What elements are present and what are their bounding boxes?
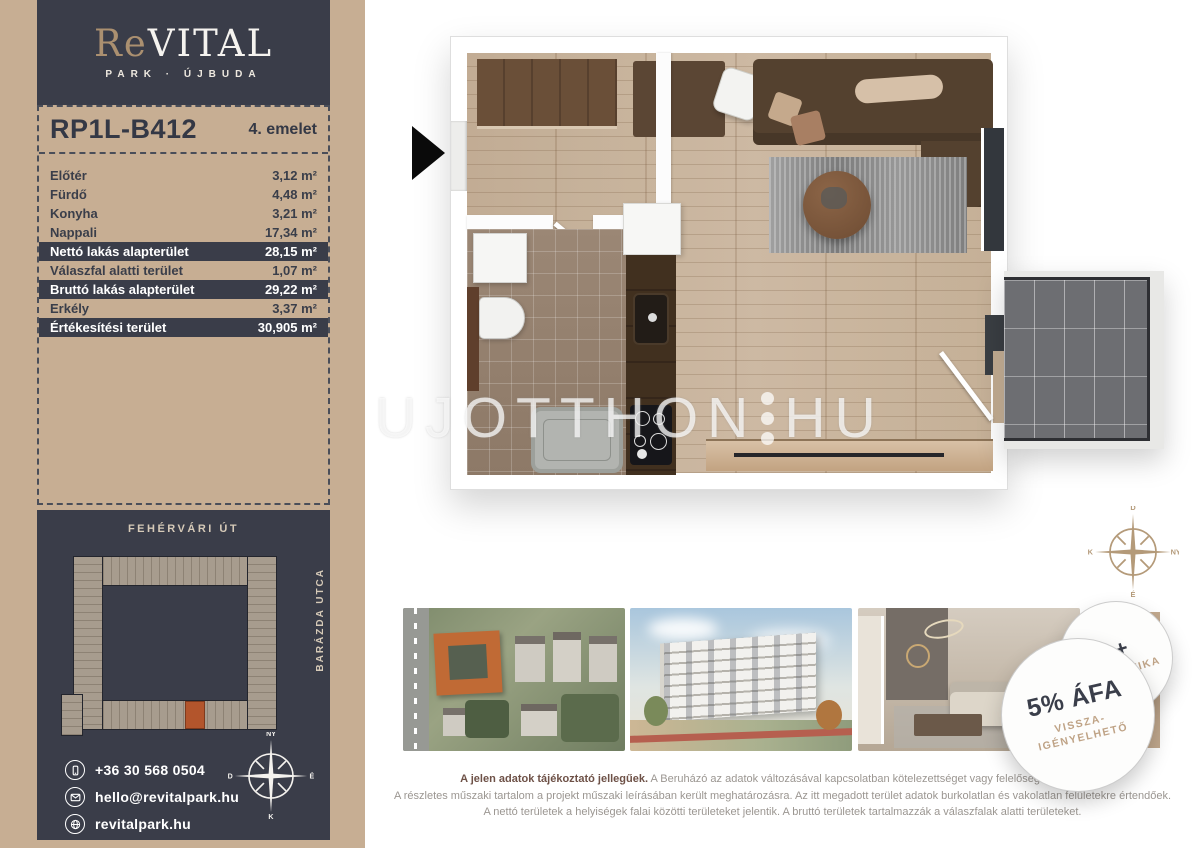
row-value: 30,905 m² xyxy=(258,320,317,335)
table-row-highlight: Értékesítési terület30,905 m² xyxy=(39,318,328,337)
building-block xyxy=(515,636,545,682)
disclaimer-lead: A jelen adatok tájékoztató jellegűek. xyxy=(460,773,648,785)
unit-floor: 4. emelet xyxy=(249,121,317,139)
brand-subtitle: PARK · ÚJBUDA xyxy=(105,69,261,80)
disclaimer-line-2: A részletes műszaki tartalom a projekt m… xyxy=(390,788,1175,805)
window xyxy=(981,128,1007,251)
watermark-text-left: UJOTTHON xyxy=(375,390,757,447)
brand-logo: ReVITAL PARK · ÚJBUDA xyxy=(37,0,330,105)
compass-rose-sidebar: NY É K D xyxy=(227,732,315,820)
building-block xyxy=(521,704,557,736)
entrance-arrow-icon xyxy=(412,126,445,180)
unit-location-marker xyxy=(185,701,205,729)
building-block xyxy=(553,632,581,682)
watermark: UJOTTHON HU xyxy=(375,386,885,450)
contact-block: +36 30 568 0504 hello@revitalpark.hu xyxy=(65,760,239,841)
table-row: Erkély3,37 m² xyxy=(39,299,328,318)
row-value: 4,48 m² xyxy=(272,187,317,202)
table-row: Előtér3,12 m² xyxy=(39,166,328,185)
row-value: 29,22 m² xyxy=(265,282,317,297)
table-row: Válaszfal alatti terület1,07 m² xyxy=(39,261,328,280)
unit-info-panel: RP1L-B412 4. emelet Előtér3,12 m² Fürdő4… xyxy=(37,105,330,505)
brand-wordmark-vital: VITAL xyxy=(148,22,273,65)
compass-label-right: NY xyxy=(1171,547,1179,556)
area-table: Előtér3,12 m² Fürdő4,48 m² Konyha3,21 m²… xyxy=(39,166,328,337)
vat-badge: 5% ÁFA VISSZA- IGÉNYELHETŐ xyxy=(1001,638,1155,792)
doorway xyxy=(858,616,884,744)
brochure-page: ReVITAL PARK · ÚJBUDA RP1L-B412 4. emele… xyxy=(0,0,1200,848)
building-render xyxy=(664,633,816,722)
stove-knob xyxy=(637,449,647,459)
street-label-right: BARÁZDA UTCA xyxy=(315,568,326,672)
building-wing-annex xyxy=(61,694,83,736)
bathroom-vanity xyxy=(467,287,479,391)
table-row: Konyha3,21 m² xyxy=(39,204,328,223)
contact-phone[interactable]: +36 30 568 0504 xyxy=(65,760,239,780)
table-row: Nappali17,34 m² xyxy=(39,223,328,242)
toilet xyxy=(479,297,525,339)
desk xyxy=(633,61,725,137)
globe-icon xyxy=(65,814,85,834)
compass-rose-plan: D NY É K xyxy=(1087,506,1179,598)
watermark-text-right: HU xyxy=(784,390,884,447)
row-label: Nappali xyxy=(50,225,97,240)
mirror xyxy=(906,644,930,668)
wardrobe xyxy=(477,59,617,129)
contact-website-text: revitalpark.hu xyxy=(95,816,191,832)
row-label: Válaszfal alatti terület xyxy=(50,263,183,278)
row-label: Előtér xyxy=(50,168,87,183)
balcony xyxy=(1004,271,1164,449)
highlighted-building xyxy=(433,630,502,695)
compass-label-top: D xyxy=(1130,506,1136,512)
kitchen-cabinet xyxy=(623,203,681,255)
row-value: 17,34 m² xyxy=(265,225,317,240)
road xyxy=(403,608,429,751)
cloud xyxy=(648,618,718,640)
contact-website[interactable]: revitalpark.hu xyxy=(65,814,239,834)
row-value: 3,12 m² xyxy=(272,168,317,183)
table-row-highlight: Bruttó lakás alapterület29,22 m² xyxy=(39,280,328,299)
envelope-icon xyxy=(65,787,85,807)
contact-email-text: hello@revitalpark.hu xyxy=(95,789,239,805)
compass-label-right: É xyxy=(309,771,314,780)
contact-phone-text: +36 30 568 0504 xyxy=(95,762,205,778)
row-label: Nettó lakás alapterület xyxy=(50,244,189,259)
row-value: 3,37 m² xyxy=(272,301,317,316)
row-value: 1,07 m² xyxy=(272,263,317,278)
unit-code: RP1L-B412 xyxy=(50,114,197,145)
table-row: Fürdő4,48 m² xyxy=(39,185,328,204)
green-area xyxy=(465,700,509,738)
row-label: Erkély xyxy=(50,301,89,316)
sidebar: ReVITAL PARK · ÚJBUDA RP1L-B412 4. emele… xyxy=(0,0,365,848)
interior-wall xyxy=(656,53,671,215)
interior-wall xyxy=(467,215,553,229)
tree xyxy=(816,700,842,730)
coffee-table xyxy=(803,171,871,239)
site-plan xyxy=(57,548,297,740)
kitchen-sink xyxy=(633,293,669,345)
building-wing-north xyxy=(79,556,275,586)
disclaimer-line-3: A nettó területek a helyiségek falai köz… xyxy=(390,804,1175,821)
brand-wordmark: ReVITAL xyxy=(94,25,273,62)
location-panel: FEHÉRVÁRI ÚT BARÁZDA UTCA xyxy=(37,510,330,840)
table-row-highlight: Nettó lakás alapterület28,15 m² xyxy=(39,242,328,261)
green-area xyxy=(561,694,619,742)
building-block xyxy=(589,636,617,682)
contact-email[interactable]: hello@revitalpark.hu xyxy=(65,787,239,807)
compass-label-left: K xyxy=(1088,547,1094,556)
photo-building-exterior xyxy=(630,608,852,751)
compass-label-bottom: K xyxy=(268,814,274,820)
building-wing-east xyxy=(247,556,277,730)
row-value: 28,15 m² xyxy=(265,244,317,259)
street-label-top: FEHÉRVÁRI ÚT xyxy=(37,510,330,535)
building-wing-south xyxy=(79,700,275,730)
washing-machine xyxy=(473,233,527,283)
row-label: Konyha xyxy=(50,206,98,221)
watermark-dots xyxy=(761,392,774,445)
row-value: 3,21 m² xyxy=(272,206,317,221)
balcony-tile-floor xyxy=(1004,277,1150,441)
coffee-table xyxy=(914,714,982,736)
row-label: Bruttó lakás alapterület xyxy=(50,282,195,297)
unit-title-row: RP1L-B412 4. emelet xyxy=(39,107,328,154)
brand-wordmark-re: Re xyxy=(94,22,148,65)
entry-door-recess xyxy=(451,121,467,191)
compass-label-bottom: É xyxy=(1131,590,1136,598)
row-label: Értékesítési terület xyxy=(50,320,166,335)
photo-aerial-view xyxy=(403,608,625,751)
row-label: Fürdő xyxy=(50,187,87,202)
phone-icon xyxy=(65,760,85,780)
compass-label-top: NY xyxy=(266,732,276,738)
main-content: UJOTTHON HU D NY É K xyxy=(365,0,1200,848)
tree xyxy=(644,696,668,726)
